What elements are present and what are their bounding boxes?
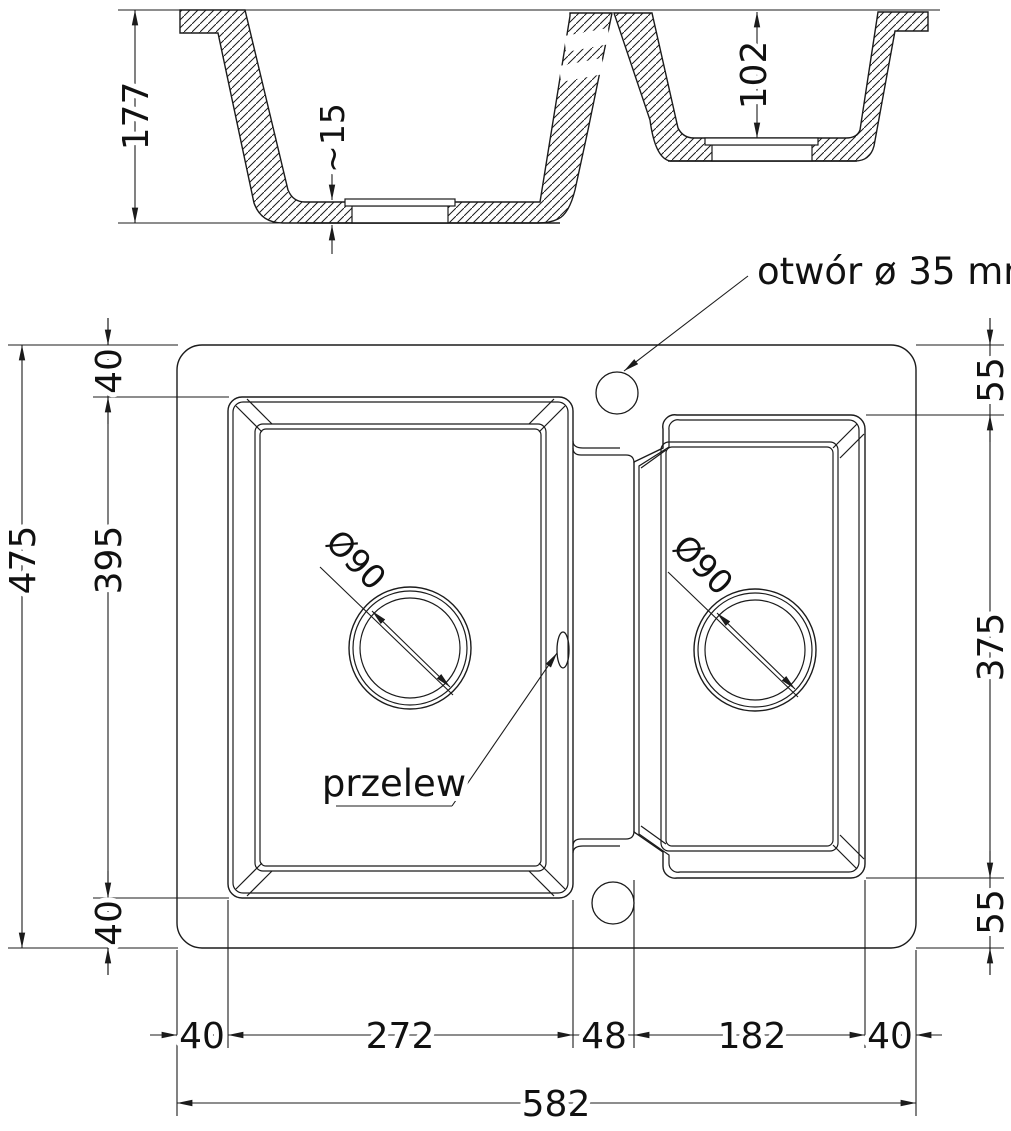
dim-right-drain-diameter: Ø90	[665, 527, 741, 603]
section-right-drain-plate	[705, 138, 818, 145]
second-tap-hole	[592, 882, 634, 924]
left-bowl-corner-facets	[236, 399, 565, 896]
dim-left-drain-diameter: Ø90	[318, 522, 394, 598]
dim-right-bottom-margin: 55	[971, 889, 1011, 935]
dim-right-bowl-height: 375	[971, 613, 1011, 682]
dim-right-top-margin: 55	[971, 357, 1011, 403]
technical-drawing-canvas: 177 ~15 102	[0, 0, 1011, 1131]
dim-left-bowl-width: 272	[366, 1016, 435, 1057]
dim-divider-width: 48	[581, 1016, 627, 1057]
faucet-hole	[596, 372, 638, 414]
bowl-divider	[573, 441, 634, 853]
dimension-lines	[22, 276, 990, 1103]
section-left-bowl-wall	[180, 10, 612, 223]
right-bowl-corner-facets	[641, 424, 864, 869]
faucet-hole-label: otwór ø 35 mm	[757, 250, 1011, 293]
dim-small-bowl-depth: 102	[734, 41, 775, 110]
dim-bowl-height: 395	[89, 526, 130, 595]
overflow-slot	[557, 632, 569, 668]
dim-bottom-thickness: ~15	[313, 103, 352, 173]
dim-right-margin: 40	[867, 1016, 913, 1057]
sink-drawing-svg: 177 ~15 102	[0, 0, 1011, 1131]
left-bowl	[228, 397, 573, 898]
dim-overall-depth: 177	[116, 82, 157, 151]
section-view	[118, 10, 940, 254]
section-right-drain-recess	[712, 145, 812, 161]
dim-bottom-margin: 40	[89, 900, 130, 946]
dim-left-margin: 40	[179, 1016, 225, 1057]
extension-lines	[8, 345, 1004, 1116]
right-bowl	[634, 415, 865, 878]
dim-right-bowl-width: 182	[718, 1016, 787, 1057]
section-left-drain-recess	[352, 206, 448, 223]
plan-view	[8, 276, 1004, 1116]
dim-top-margin: 40	[89, 348, 130, 394]
section-left-drain-plate	[345, 199, 455, 206]
dim-overall-width: 582	[522, 1084, 591, 1125]
overflow-label: przelew	[322, 762, 466, 805]
dim-overall-height: 475	[3, 526, 44, 595]
